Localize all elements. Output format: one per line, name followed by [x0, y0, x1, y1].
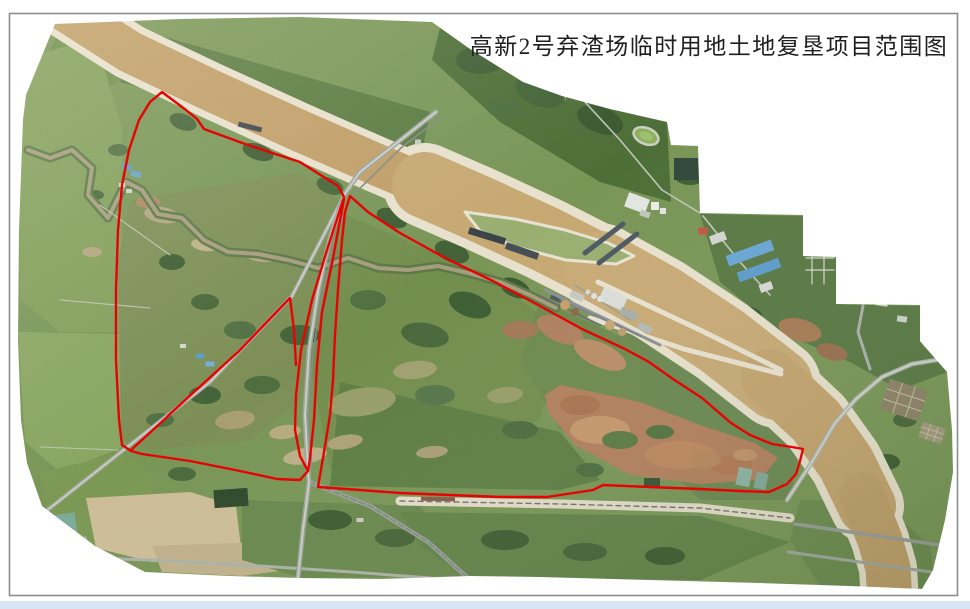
- reclamation-scope-map-page: 高新2号弃渣场临时用地土地复垦项目范围图: [0, 0, 970, 609]
- page-bottom-strip: [0, 601, 970, 609]
- map-title: 高新2号弃渣场临时用地土地复垦项目范围图: [470, 34, 949, 59]
- aerial-orthophoto-map: 高新2号弃渣场临时用地土地复垦项目范围图: [0, 0, 970, 609]
